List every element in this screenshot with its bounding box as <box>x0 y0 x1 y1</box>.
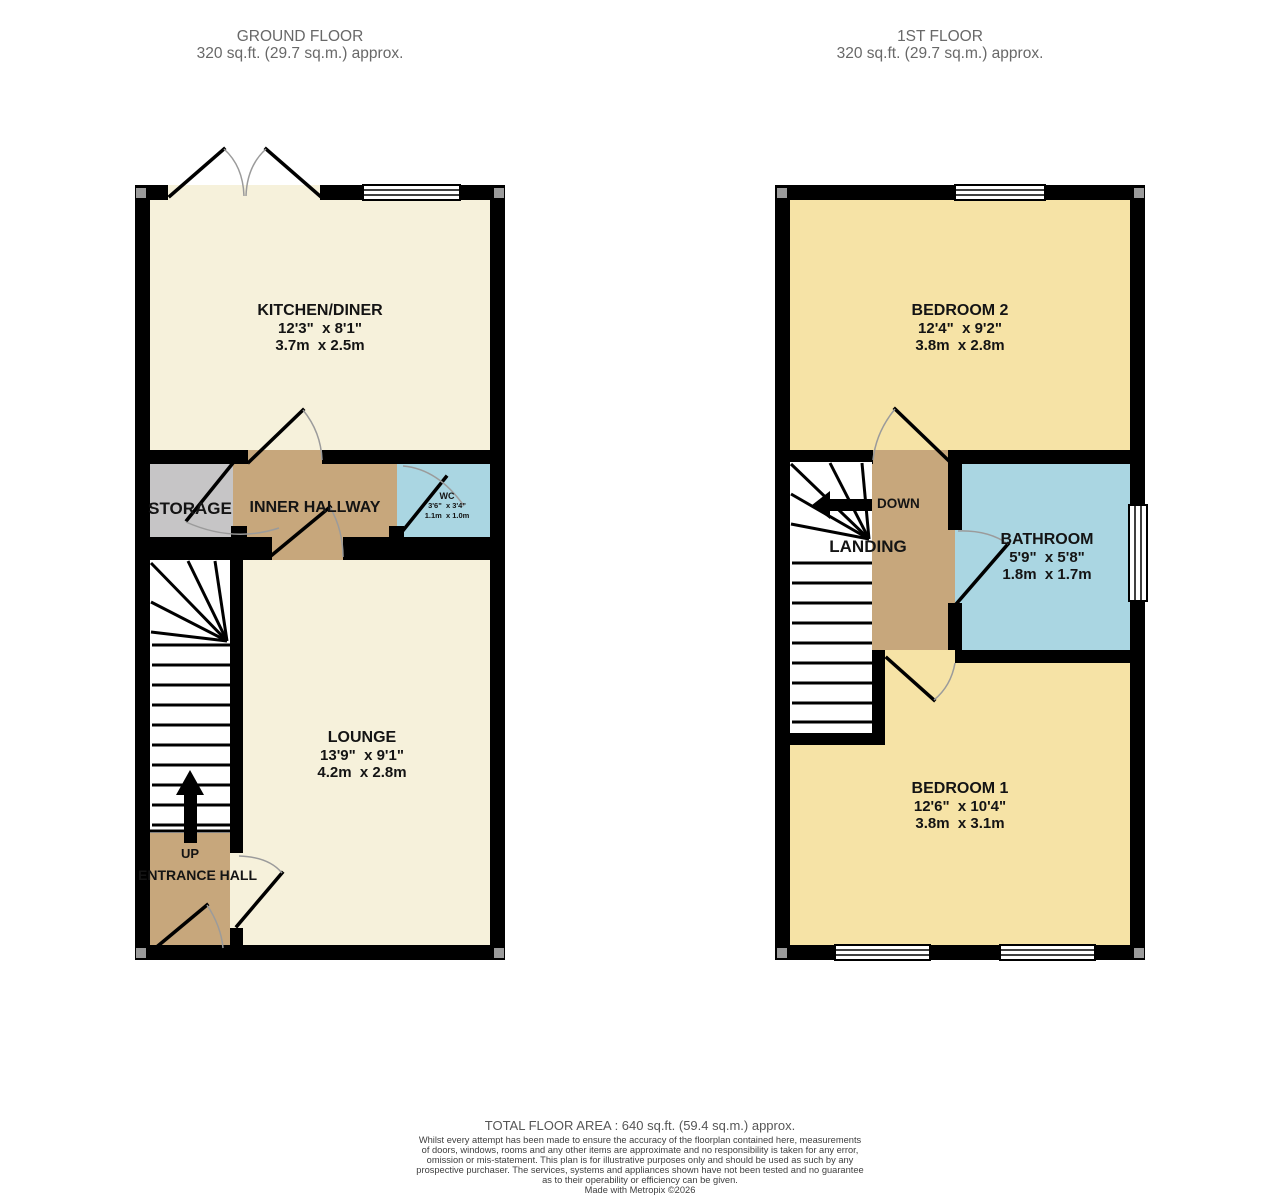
room-name: LOUNGE <box>262 729 462 747</box>
bathroom-label: BATHROOM 5'9" x 5'8" 1.8m x 1.7m <box>957 531 1137 583</box>
gf-wall <box>322 450 490 464</box>
floorplan-page: GROUND FLOOR 320 sq.ft. (29.7 sq.m.) app… <box>0 0 1280 1198</box>
room-name: BEDROOM 1 <box>860 780 1060 798</box>
down-label: DOWN <box>877 496 947 511</box>
gf-wall-stub <box>228 928 243 960</box>
ff-bathroom-wall <box>948 603 962 652</box>
ff-wall <box>948 450 1130 464</box>
room-imperial-dims: 13'9" x 9'1" <box>262 747 462 764</box>
ff-corner-notch <box>777 188 787 198</box>
ff-bedroom2-door-opening <box>873 450 948 464</box>
gf-stairs-wall <box>230 560 243 853</box>
ff-corner-notch <box>1134 188 1144 198</box>
room-imperial-dims: 12'3" x 8'1" <box>220 320 420 337</box>
first-floor-area: 320 sq.ft. (29.7 sq.m.) approx. <box>790 46 1090 63</box>
room-imperial-dims: 3'6" x 3'4" <box>407 501 487 511</box>
bedroom1-label: BEDROOM 1 12'6" x 10'4" 3.8m x 3.1m <box>860 780 1060 832</box>
gf-kitchen-window <box>363 185 460 200</box>
ff-bedroom1-door-opening <box>885 650 955 663</box>
disclaimer: Whilst every attempt has been made to en… <box>0 1136 1280 1195</box>
room-metric-dims: 3.8m x 3.1m <box>860 815 1060 832</box>
ff-corner-notch <box>1134 948 1144 958</box>
room-metric-dims: 3.8m x 2.8m <box>860 337 1060 354</box>
ff-bathroom-wall <box>948 462 962 530</box>
room-metric-dims: 3.7m x 2.5m <box>220 337 420 354</box>
ground-floor-area: 320 sq.ft. (29.7 sq.m.) approx. <box>150 46 450 63</box>
kitchen-diner-label: KITCHEN/DINER 12'3" x 8'1" 3.7m x 2.5m <box>220 302 420 354</box>
first-floor-name: 1ST FLOOR <box>790 29 1090 46</box>
ff-wall <box>955 650 1130 663</box>
total-floor-area: TOTAL FLOOR AREA : 640 sq.ft. (59.4 sq.m… <box>0 1118 1280 1133</box>
room-name: BATHROOM <box>957 531 1137 549</box>
gf-corner-notch <box>494 948 504 958</box>
gf-corner-notch <box>136 188 146 198</box>
gf-corner-notch <box>136 948 146 958</box>
room-name: KITCHEN/DINER <box>220 302 420 320</box>
wc-label: WC 3'6" x 3'4" 1.1m x 1.0m <box>407 491 487 521</box>
gf-lounge-door-opening <box>272 537 343 560</box>
up-label: UP <box>160 846 220 861</box>
gf-wall <box>150 537 272 560</box>
gf-entrance-lounge-opening <box>230 853 243 928</box>
ground-floor-name: GROUND FLOOR <box>150 29 450 46</box>
ff-bedroom1-window-left <box>835 945 930 960</box>
room-name: WC <box>407 491 487 501</box>
room-metric-dims: 1.8m x 1.7m <box>957 566 1137 583</box>
ff-wall <box>872 650 885 745</box>
lounge-label: LOUNGE 13'9" x 9'1" 4.2m x 2.8m <box>262 729 462 781</box>
room-imperial-dims: 12'6" x 10'4" <box>860 798 1060 815</box>
room-metric-dims: 4.2m x 2.8m <box>262 764 462 781</box>
ground-floor-title: GROUND FLOOR 320 sq.ft. (29.7 sq.m.) app… <box>150 29 450 62</box>
bedroom2-label: BEDROOM 2 12'4" x 9'2" 3.8m x 2.8m <box>860 302 1060 354</box>
ff-wall <box>790 450 873 464</box>
floorplan-drawing <box>0 0 1280 1198</box>
room-imperial-dims: 5'9" x 5'8" <box>957 549 1137 566</box>
room-imperial-dims: 12'4" x 9'2" <box>860 320 1060 337</box>
room-metric-dims: 1.1m x 1.0m <box>407 511 487 521</box>
gf-wall-stub <box>231 526 247 560</box>
landing-label: LANDING <box>798 537 938 557</box>
entrance-hall-label: ENTRANCE HALL <box>138 867 238 883</box>
first-floor-title: 1ST FLOOR 320 sq.ft. (29.7 sq.m.) approx… <box>790 29 1090 62</box>
gf-corner-notch <box>494 188 504 198</box>
ff-bedroom1-window-right <box>1000 945 1095 960</box>
ff-wall <box>790 733 885 745</box>
ff-bedroom2-window <box>955 185 1045 200</box>
ff-corner-notch <box>777 948 787 958</box>
inner-hallway-label: INNER HALLWAY <box>215 499 415 517</box>
gf-wall <box>343 537 490 560</box>
metropix-credit: Made with Metropix ©2026 <box>0 1186 1280 1196</box>
room-name: BEDROOM 2 <box>860 302 1060 320</box>
ground-floor-plan <box>135 149 505 960</box>
